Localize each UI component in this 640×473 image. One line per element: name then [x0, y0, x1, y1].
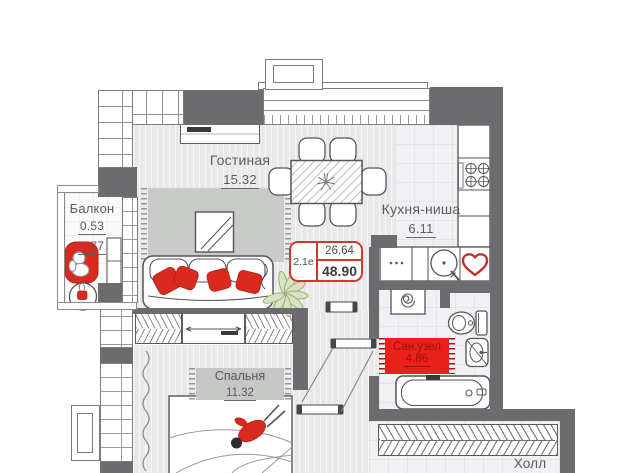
unit-living-area: 26.64: [318, 243, 361, 261]
wall: [293, 308, 308, 390]
wall: [369, 247, 379, 339]
window: [100, 363, 133, 462]
bedroom-door-leaf: [297, 405, 343, 414]
wall: [430, 87, 503, 125]
wall: [100, 348, 133, 363]
apartment-floor-plan: Сан.узел 4.86: [0, 0, 640, 473]
unit-badge: 2.1е 26.64 48.90: [289, 241, 363, 282]
room-area: 1.77: [78, 239, 106, 255]
wall: [370, 409, 575, 421]
headboard-fringe-left: [189, 368, 195, 400]
balcony-wall: [57, 302, 137, 310]
bath-sink-icon: [466, 339, 488, 367]
bathtub-icon: [396, 375, 490, 409]
curtain-line: [143, 351, 149, 471]
balcony-window-wall: [122, 197, 138, 303]
chair: [330, 138, 356, 163]
cup-icon: [78, 291, 88, 300]
insulated-wall: [98, 90, 133, 168]
room-name: Балкон: [60, 201, 124, 216]
wall: [560, 421, 575, 473]
wall: [440, 287, 450, 308]
wall: [98, 167, 137, 197]
room-name: Гостиная: [175, 152, 305, 169]
tv-icon: [181, 127, 259, 134]
wall: [490, 125, 503, 409]
room-area: 15.32: [221, 172, 259, 189]
chair: [299, 201, 325, 226]
window: [263, 88, 430, 125]
room-area: 0.53: [78, 219, 106, 235]
room-area: 11.32: [224, 387, 256, 401]
coffee-table: [196, 212, 234, 252]
wall: [100, 462, 133, 473]
kitchen-label-group: Кухня-ниша 6.11: [361, 201, 481, 238]
wall: [133, 308, 293, 314]
drawer-front: [186, 327, 241, 335]
wall: [450, 287, 492, 293]
toilet-icon: [449, 311, 488, 335]
cabinet-knobs: [390, 262, 404, 265]
ac-unit-inner: [273, 65, 314, 83]
bathroom-door-leaf: [331, 339, 376, 348]
headboard-fringe-right: [285, 368, 291, 400]
wall: [369, 376, 379, 421]
washing-machine-icon: [391, 288, 425, 314]
unit-number: 2.1е: [291, 243, 318, 280]
unit-total-area: 48.90: [318, 261, 361, 280]
living-room-label-group: Гостиная 15.32: [175, 152, 305, 189]
chair: [361, 168, 386, 195]
room-name: Спальня: [196, 369, 284, 383]
balcony-wall: [57, 185, 99, 193]
room-area: 6.11: [406, 221, 435, 238]
ac-unit-icon: [71, 405, 100, 461]
sofa: [143, 256, 273, 309]
hall-label: Холл: [500, 456, 560, 472]
door-leaf: [326, 302, 357, 312]
balcony-label-group: Балкон 0.53 1.77: [60, 201, 124, 256]
wall: [183, 90, 263, 125]
ac-unit-inner: [77, 413, 93, 453]
ac-unit-icon: [265, 59, 323, 90]
bedroom-headboard: Спальня 11.32: [196, 368, 284, 400]
bed: [169, 396, 292, 473]
room-name: Кухня-ниша: [361, 201, 481, 218]
chair: [330, 201, 356, 226]
